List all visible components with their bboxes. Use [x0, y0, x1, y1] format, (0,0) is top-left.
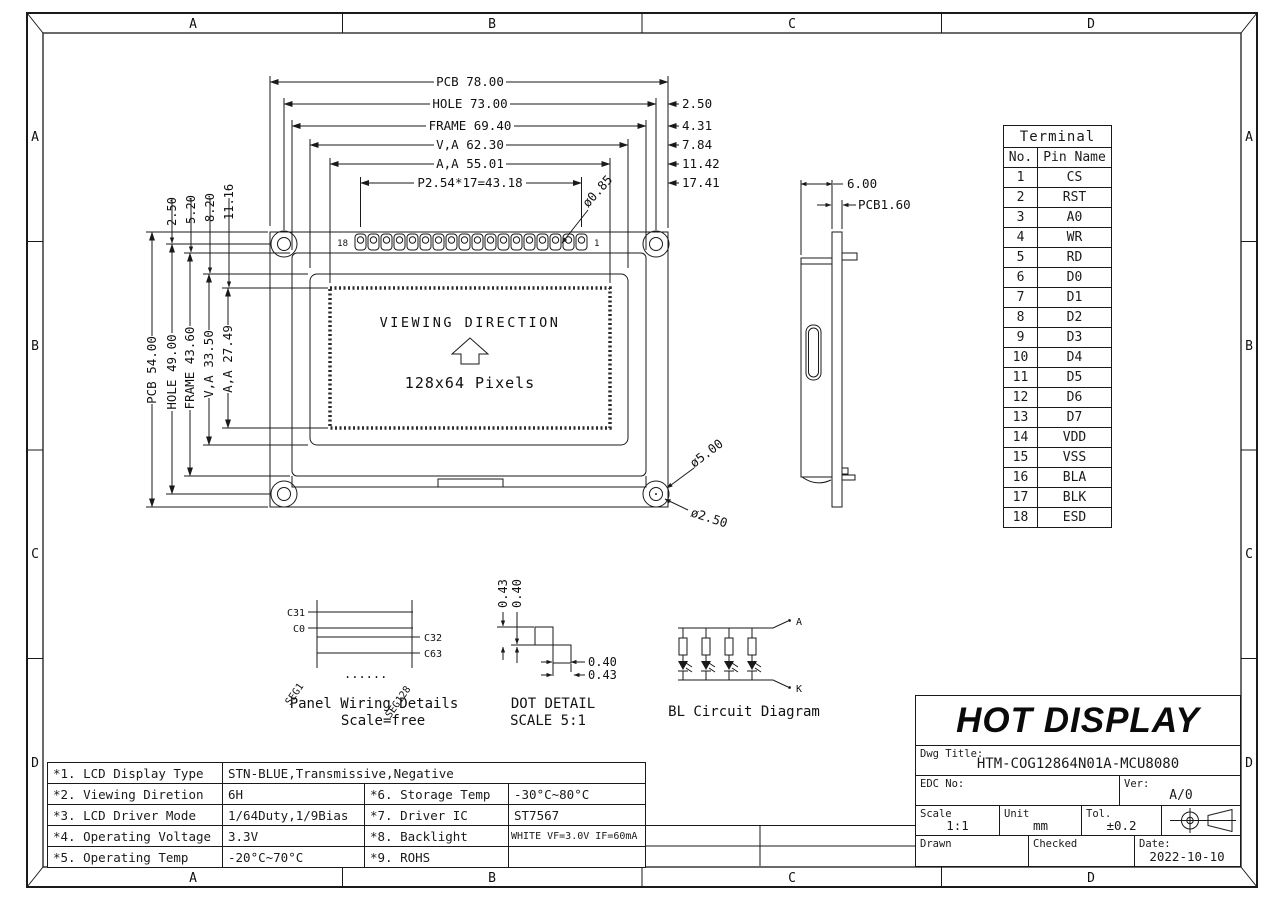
terminal-row: 16BLA — [1004, 468, 1112, 488]
spec-label: *9. ROHS — [365, 847, 509, 868]
bl-cathode-label: K — [796, 684, 802, 695]
spec-row: *2. Viewing Diretion 6H *6. Storage Temp… — [48, 784, 646, 805]
cell: D1 — [1038, 288, 1112, 308]
bl-branch — [747, 628, 761, 680]
cell: 16 — [1004, 468, 1038, 488]
dim-offset: 7.84 — [682, 137, 712, 152]
dim-va-width: V,A 62.30 — [436, 137, 504, 152]
terminal-row: 11D5 — [1004, 368, 1112, 388]
backlight-circuit-diagram: A K BL Circuit Diagram — [668, 617, 820, 720]
terminal-row: 2RST — [1004, 188, 1112, 208]
border-letter: B — [31, 339, 39, 354]
dim-frame-height: FRAME 43.60 — [182, 327, 197, 410]
bl-branch — [678, 628, 692, 680]
dim-frame-width: FRAME 69.40 — [429, 118, 512, 133]
spec-label: *8. Backlight — [365, 826, 509, 847]
terminal-row: 8D2 — [1004, 308, 1112, 328]
border-letter: C — [31, 547, 39, 562]
bl-anode-label: A — [796, 617, 802, 628]
spec-label: *3. LCD Driver Mode — [48, 805, 223, 826]
dim-offset: 11.42 — [682, 156, 720, 171]
terminal-table: Terminal No. Pin Name 1CS 2RST 3A0 4WR 5… — [1003, 125, 1112, 528]
dim-dot-size-v: 0.40 — [510, 579, 524, 608]
cell: D0 — [1038, 268, 1112, 288]
dot-detail-scale-caption: SCALE 5:1 — [510, 713, 586, 729]
border-letter: A — [189, 871, 197, 886]
dim-pcb-width: PCB 78.00 — [436, 74, 504, 89]
cell: WR — [1038, 228, 1112, 248]
cell: 5 — [1004, 248, 1038, 268]
pin-header: 18 1 — [337, 234, 599, 250]
terminal-row: 4WR — [1004, 228, 1112, 248]
terminal-row: 15VSS — [1004, 448, 1112, 468]
border-letter: C — [1245, 547, 1253, 562]
spec-value: -20°C~70°C — [223, 847, 365, 868]
border-letter: D — [1245, 756, 1253, 771]
dwg-title-label: Dwg Title: — [920, 748, 983, 760]
title-block: HOT DISPLAY Dwg Title: HTM-COG12864N01A-… — [915, 695, 1241, 867]
terminal-row: 6D0 — [1004, 268, 1112, 288]
spec-value: 6H — [223, 784, 365, 805]
spec-value: ST7567 — [509, 805, 646, 826]
dim-pin-pitch: P2.54*17=43.18 — [417, 175, 522, 190]
spec-label: *7. Driver IC — [365, 805, 509, 826]
tolerance-cell: Tol. ±0.2 — [1081, 806, 1161, 835]
terminal-row: 10D4 — [1004, 348, 1112, 368]
terminal-row: 14VDD — [1004, 428, 1112, 448]
checked-label: Checked — [1033, 838, 1077, 850]
border-letter: B — [488, 871, 496, 886]
dwg-title-cell: Dwg Title: HTM-COG12864N01A-MCU8080 — [916, 746, 1240, 776]
date-label: Date: — [1139, 838, 1171, 850]
cell: 8 — [1004, 308, 1038, 328]
terminal-row: 13D7 — [1004, 408, 1112, 428]
version-cell: Ver: A/0 — [1119, 776, 1242, 805]
dim-hole-outer-dia: ø5.00 — [687, 436, 726, 471]
dim-hole-width: HOLE 73.00 — [432, 96, 507, 111]
pin-number-last: 18 — [337, 239, 348, 249]
pin-number-first: 1 — [594, 239, 599, 249]
lcd-side-view: 6.00 PCB1.60 — [801, 176, 911, 507]
dot-detail-caption: DOT DETAIL — [511, 696, 595, 712]
cell: 6 — [1004, 268, 1038, 288]
cell: D4 — [1038, 348, 1112, 368]
third-angle-projection-icon — [1162, 806, 1240, 835]
bl-branch — [701, 628, 715, 680]
terminal-row: 9D3 — [1004, 328, 1112, 348]
border-letter: C — [788, 871, 796, 886]
spec-value: 1/64Duty,1/9Bias — [223, 805, 365, 826]
cell: ESD — [1038, 508, 1112, 528]
border-letter: D — [1087, 871, 1095, 886]
spec-label: *4. Operating Voltage — [48, 826, 223, 847]
viewing-direction-label: VIEWING DIRECTION — [380, 315, 561, 331]
cell: 2 — [1004, 188, 1038, 208]
cell: D6 — [1038, 388, 1112, 408]
border-letter: C — [788, 17, 796, 32]
checked-cell: Checked — [1028, 836, 1134, 866]
terminal-row: 7D1 — [1004, 288, 1112, 308]
display-active-area — [330, 288, 610, 428]
spec-value — [509, 847, 646, 868]
dim-pcb-height: PCB 54.00 — [144, 336, 159, 404]
spec-value: 3.3V — [223, 826, 365, 847]
terminal-row: 18ESD — [1004, 508, 1112, 528]
brand-logo: HOT DISPLAY — [956, 701, 1200, 741]
dim-offset: 2.50 — [682, 96, 712, 111]
terminal-row: 3A0 — [1004, 208, 1112, 228]
spec-row: *1. LCD Display Type STN-BLUE,Transmissi… — [48, 763, 646, 784]
wiring-caption: Panel Wiring Details — [290, 696, 459, 712]
wiring-label-c63: C63 — [424, 649, 442, 660]
terminal-row: 12D6 — [1004, 388, 1112, 408]
viewing-direction-arrow-icon — [452, 338, 488, 364]
spec-label: *6. Storage Temp — [365, 784, 509, 805]
spec-row: *4. Operating Voltage 3.3V *8. Backlight… — [48, 826, 646, 847]
border-letter: D — [31, 756, 39, 771]
cell: 12 — [1004, 388, 1038, 408]
signature-row: Drawn Checked Date: 2022-10-10 — [916, 836, 1240, 866]
cell: BLA — [1038, 468, 1112, 488]
dim-small-offset: 11.16 — [222, 184, 236, 220]
cell: D5 — [1038, 368, 1112, 388]
spec-value: -30°C~80°C — [509, 784, 646, 805]
terminal-row: 5RD — [1004, 248, 1112, 268]
terminal-row: 1CS — [1004, 168, 1112, 188]
dim-hole-height: HOLE 49.00 — [164, 334, 179, 409]
cell: 4 — [1004, 228, 1038, 248]
cell: 11 — [1004, 368, 1038, 388]
border-letter: A — [31, 130, 39, 145]
spec-row: *5. Operating Temp -20°C~70°C *9. ROHS — [48, 847, 646, 868]
drawn-label: Drawn — [920, 838, 952, 850]
scale-cell: Scale 1:1 — [916, 806, 999, 835]
col-header-no: No. — [1004, 148, 1038, 168]
border-letter: A — [1245, 130, 1253, 145]
dim-dot-pitch-v: 0.43 — [496, 579, 510, 608]
wiring-label-c32: C32 — [424, 633, 442, 644]
tolerance-label: Tol. — [1086, 808, 1111, 820]
dim-small-offset: 5.20 — [184, 195, 198, 224]
dot-detail-diagram: 0.43 0.40 0.40 0.43 DOT DETAIL SCALE 5:1 — [496, 579, 617, 729]
wiring-label-dots: ...... — [344, 667, 387, 681]
dimensions-top: PCB 78.00 HOLE 73.00 FRAME 69.40 V,A 62.… — [270, 74, 720, 283]
scale-label: Scale — [920, 808, 952, 820]
cell: 14 — [1004, 428, 1038, 448]
spec-value: WHITE VF=3.0V IF=60mA — [509, 826, 646, 847]
brand-box: HOT DISPLAY — [916, 696, 1240, 746]
terminal-table-title-row: Terminal — [1004, 126, 1112, 148]
cell: VSS — [1038, 448, 1112, 468]
dim-aa-width: A,A 55.01 — [436, 156, 504, 171]
border-letter: D — [1087, 17, 1095, 32]
dim-dot-size-h: 0.40 — [588, 655, 617, 669]
dim-va-height: V,A 33.50 — [201, 330, 216, 398]
cell: 3 — [1004, 208, 1038, 228]
version-label: Ver: — [1124, 778, 1149, 790]
spec-row: *3. LCD Driver Mode 1/64Duty,1/9Bias *7.… — [48, 805, 646, 826]
scale-row: Scale 1:1 Unit mm Tol. ±0.2 — [916, 806, 1240, 836]
wiring-label-c31: C31 — [287, 608, 305, 619]
edc-no-label: EDC No: — [920, 778, 964, 790]
unit-label: Unit — [1004, 808, 1029, 820]
cell: 18 — [1004, 508, 1038, 528]
panel-wiring-diagram: C31 C0 C32 C63 SEG1 ...... SEG128 Panel … — [284, 600, 459, 729]
edc-no-cell: EDC No: Ver: A/0 — [916, 776, 1240, 806]
spec-extension-cells — [645, 826, 915, 867]
cell: D2 — [1038, 308, 1112, 328]
cell: 15 — [1004, 448, 1038, 468]
cell: RST — [1038, 188, 1112, 208]
dim-module-thickness: 6.00 — [847, 176, 877, 191]
dim-small-offset: 8.20 — [203, 193, 217, 222]
dim-dot-pitch-h: 0.43 — [588, 668, 617, 682]
border-letter: B — [1245, 339, 1253, 354]
cell: BLK — [1038, 488, 1112, 508]
bl-branch — [724, 628, 738, 680]
cell: 10 — [1004, 348, 1038, 368]
dim-small-offset: 2.50 — [165, 197, 179, 226]
dim-aa-height: A,A 27.49 — [220, 325, 235, 393]
cell: A0 — [1038, 208, 1112, 228]
cell: 9 — [1004, 328, 1038, 348]
cell: 13 — [1004, 408, 1038, 428]
spec-table: *1. LCD Display Type STN-BLUE,Transmissi… — [47, 762, 646, 868]
border-letter: B — [488, 17, 496, 32]
dim-offset: 17.41 — [682, 175, 720, 190]
drawn-cell: Drawn — [916, 836, 1028, 866]
cell: 17 — [1004, 488, 1038, 508]
projection-cell — [1161, 806, 1239, 835]
terminal-table-title: Terminal — [1004, 126, 1112, 148]
hole-diameter-callouts: ø5.00 ø2.50 — [665, 436, 730, 531]
cell: D7 — [1038, 408, 1112, 428]
dim-offset: 4.31 — [682, 118, 712, 133]
spec-label: *1. LCD Display Type — [48, 763, 223, 784]
spec-label: *2. Viewing Diretion — [48, 784, 223, 805]
dim-hole-inner-dia: ø2.50 — [689, 505, 729, 531]
engineering-drawing-sheet: A B C D A B C D A B C D A B C D 18 1 — [0, 0, 1284, 900]
wiring-label-c0: C0 — [293, 624, 305, 635]
terminal-table-header-row: No. Pin Name — [1004, 148, 1112, 168]
bl-circuit-caption: BL Circuit Diagram — [668, 704, 820, 720]
cell: D3 — [1038, 328, 1112, 348]
spec-label: *5. Operating Temp — [48, 847, 223, 868]
cell: CS — [1038, 168, 1112, 188]
col-header-pin-name: Pin Name — [1038, 148, 1112, 168]
resolution-label: 128x64 Pixels — [405, 374, 535, 392]
spec-value: STN-BLUE,Transmissive,Negative — [223, 763, 646, 784]
cell: RD — [1038, 248, 1112, 268]
cell: VDD — [1038, 428, 1112, 448]
cell: 7 — [1004, 288, 1038, 308]
date-cell: Date: 2022-10-10 — [1134, 836, 1239, 866]
wiring-scale-caption: Scale=free — [341, 713, 425, 729]
dim-pcb-thickness: PCB1.60 — [858, 197, 911, 212]
border-letter: A — [189, 17, 197, 32]
cell: 1 — [1004, 168, 1038, 188]
unit-cell: Unit mm — [999, 806, 1081, 835]
terminal-row: 17BLK — [1004, 488, 1112, 508]
